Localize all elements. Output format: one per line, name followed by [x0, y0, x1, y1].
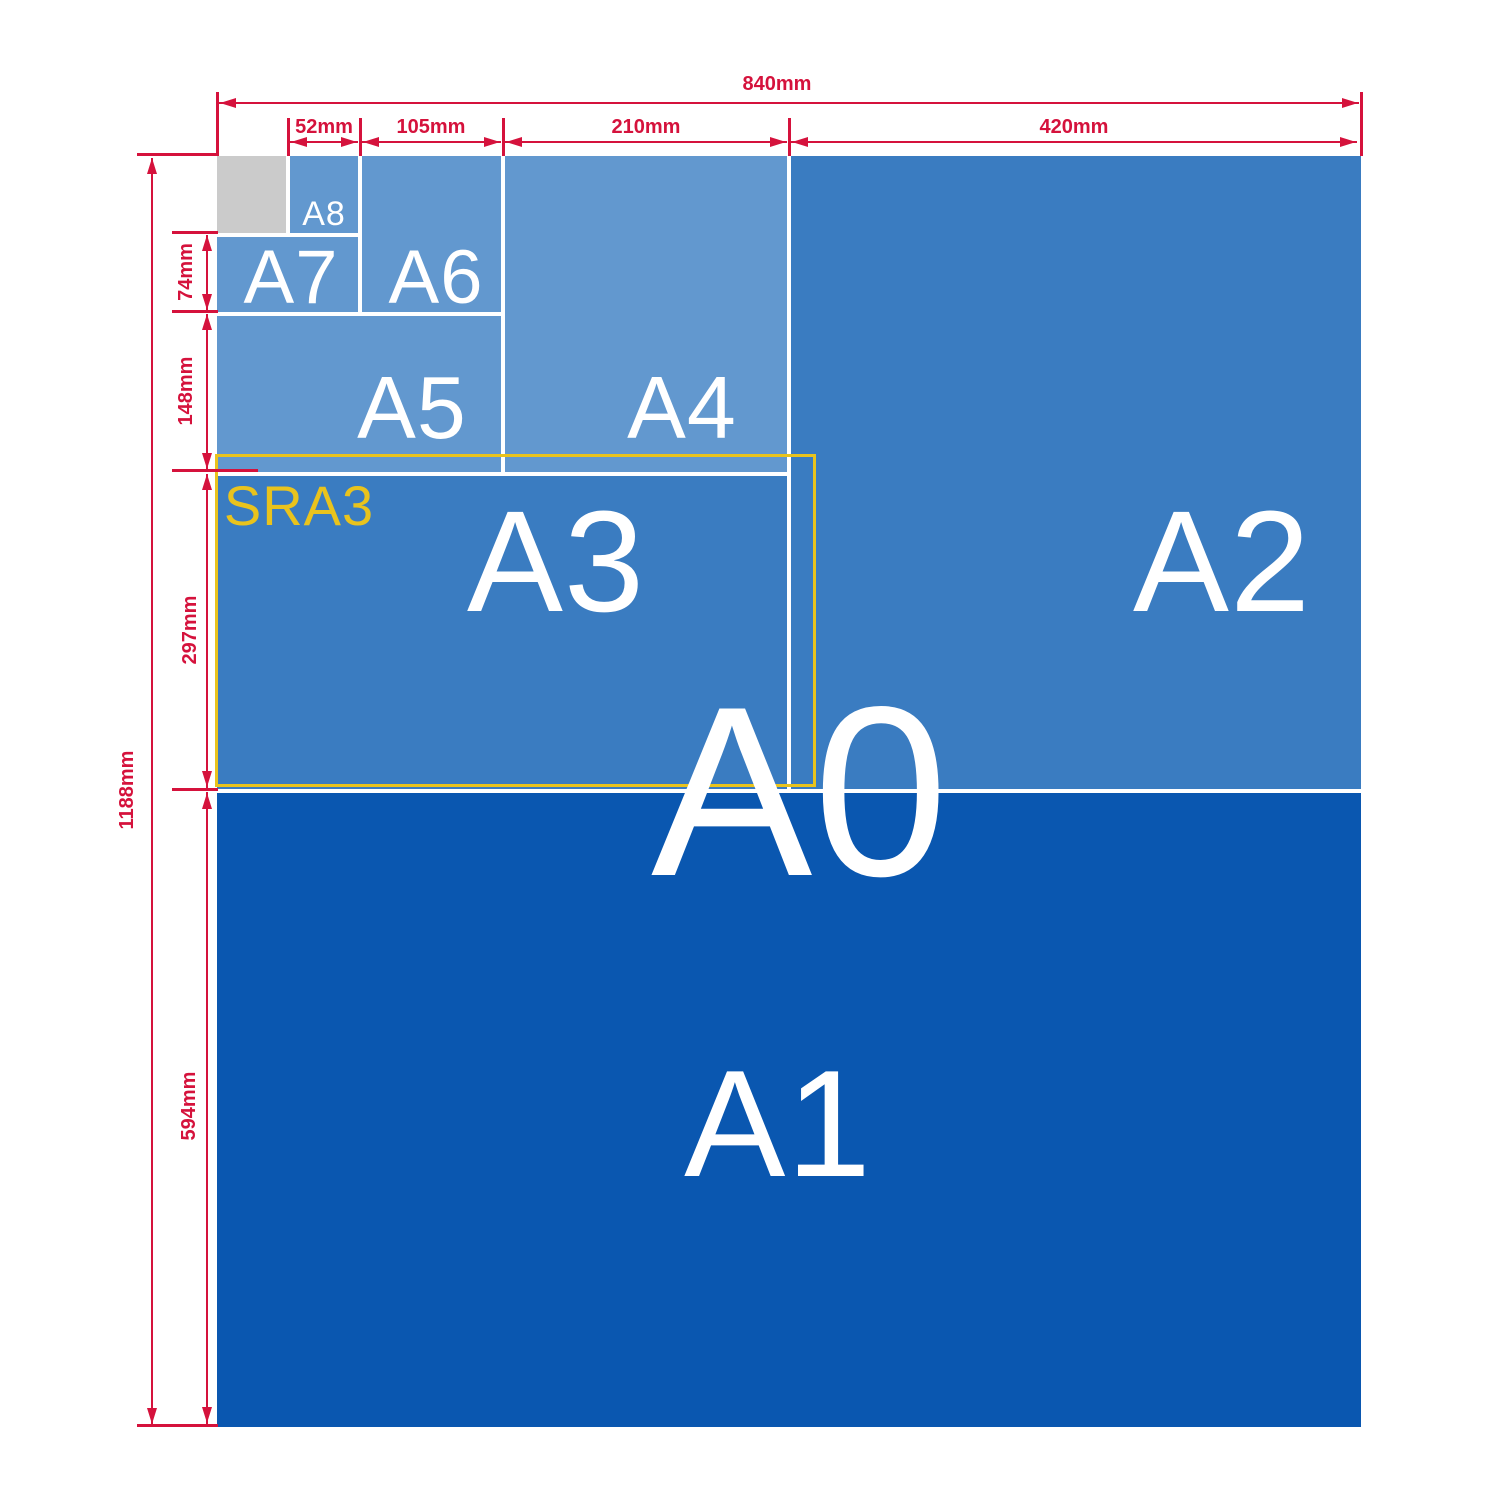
label-sra3: SRA3 [224, 478, 374, 534]
dim-tick-74-bottom [172, 310, 218, 313]
dim-line-840mm [219, 102, 1359, 104]
dim-label-420mm: 420mm [1040, 117, 1109, 137]
arrow-up-icon [147, 158, 157, 174]
paper-sizes-diagram: 840mm 52mm 105mm 210mm 420mm 1188mm 74mm… [0, 0, 1500, 1500]
dim-label-105mm: 105mm [397, 117, 466, 137]
label-a0: A0 [651, 671, 949, 913]
dim-tick-105-right [502, 118, 505, 156]
label-a4: A4 [627, 364, 737, 452]
region-blank-corner [217, 156, 286, 233]
dim-line-105mm [362, 141, 501, 143]
arrow-left-icon [506, 137, 522, 147]
arrow-down-icon [147, 1408, 157, 1424]
arrow-right-icon [770, 137, 786, 147]
dim-label-1188mm: 1188mm [117, 751, 137, 830]
dim-tick-52-right [359, 118, 362, 156]
dim-label-52mm: 52mm [295, 117, 353, 137]
arrow-down-icon [202, 453, 212, 469]
dim-line-148mm [206, 314, 208, 470]
arrow-right-icon [1342, 98, 1358, 108]
arrow-down-icon [202, 1407, 212, 1423]
dim-label-210mm: 210mm [612, 117, 681, 137]
dim-label-74mm: 74mm [176, 243, 196, 301]
dim-label-840mm: 840mm [743, 74, 812, 94]
arrow-left-icon [363, 137, 379, 147]
dim-tick-840-right [1360, 92, 1363, 156]
dim-tick-297-bottom [172, 788, 218, 791]
arrow-right-icon [1340, 137, 1356, 147]
dim-line-210mm [505, 141, 787, 143]
label-a8: A8 [302, 197, 346, 231]
arrow-down-icon [202, 771, 212, 787]
dim-label-594mm: 594mm [179, 1072, 199, 1141]
label-a1: A1 [684, 1048, 872, 1200]
arrow-left-icon [792, 137, 808, 147]
arrow-up-icon [202, 474, 212, 490]
label-a3: A3 [467, 490, 645, 634]
dim-line-1188mm [151, 158, 153, 1426]
dim-tick-52-left [287, 118, 290, 156]
dim-line-297mm [206, 474, 208, 788]
label-a7: A7 [244, 240, 339, 316]
label-a5: A5 [357, 364, 467, 452]
dim-tick-840-left [216, 92, 219, 156]
dim-label-148mm: 148mm [176, 357, 196, 426]
arrow-up-icon [202, 793, 212, 809]
dim-label-297mm: 297mm [180, 596, 200, 665]
dim-tick-1188-top [137, 153, 218, 156]
dim-tick-148-bottom [172, 469, 258, 472]
dim-tick-74-top [172, 231, 218, 234]
label-a6: A6 [389, 240, 484, 316]
label-a2: A2 [1133, 490, 1311, 634]
arrow-up-icon [202, 235, 212, 251]
arrow-left-icon [220, 98, 236, 108]
dim-line-420mm [791, 141, 1357, 143]
dim-line-594mm [206, 792, 208, 1425]
arrow-left-icon [291, 137, 307, 147]
arrow-down-icon [202, 294, 212, 310]
dim-tick-210-right [788, 118, 791, 156]
arrow-up-icon [202, 314, 212, 330]
arrow-right-icon [484, 137, 500, 147]
arrow-right-icon [341, 137, 357, 147]
